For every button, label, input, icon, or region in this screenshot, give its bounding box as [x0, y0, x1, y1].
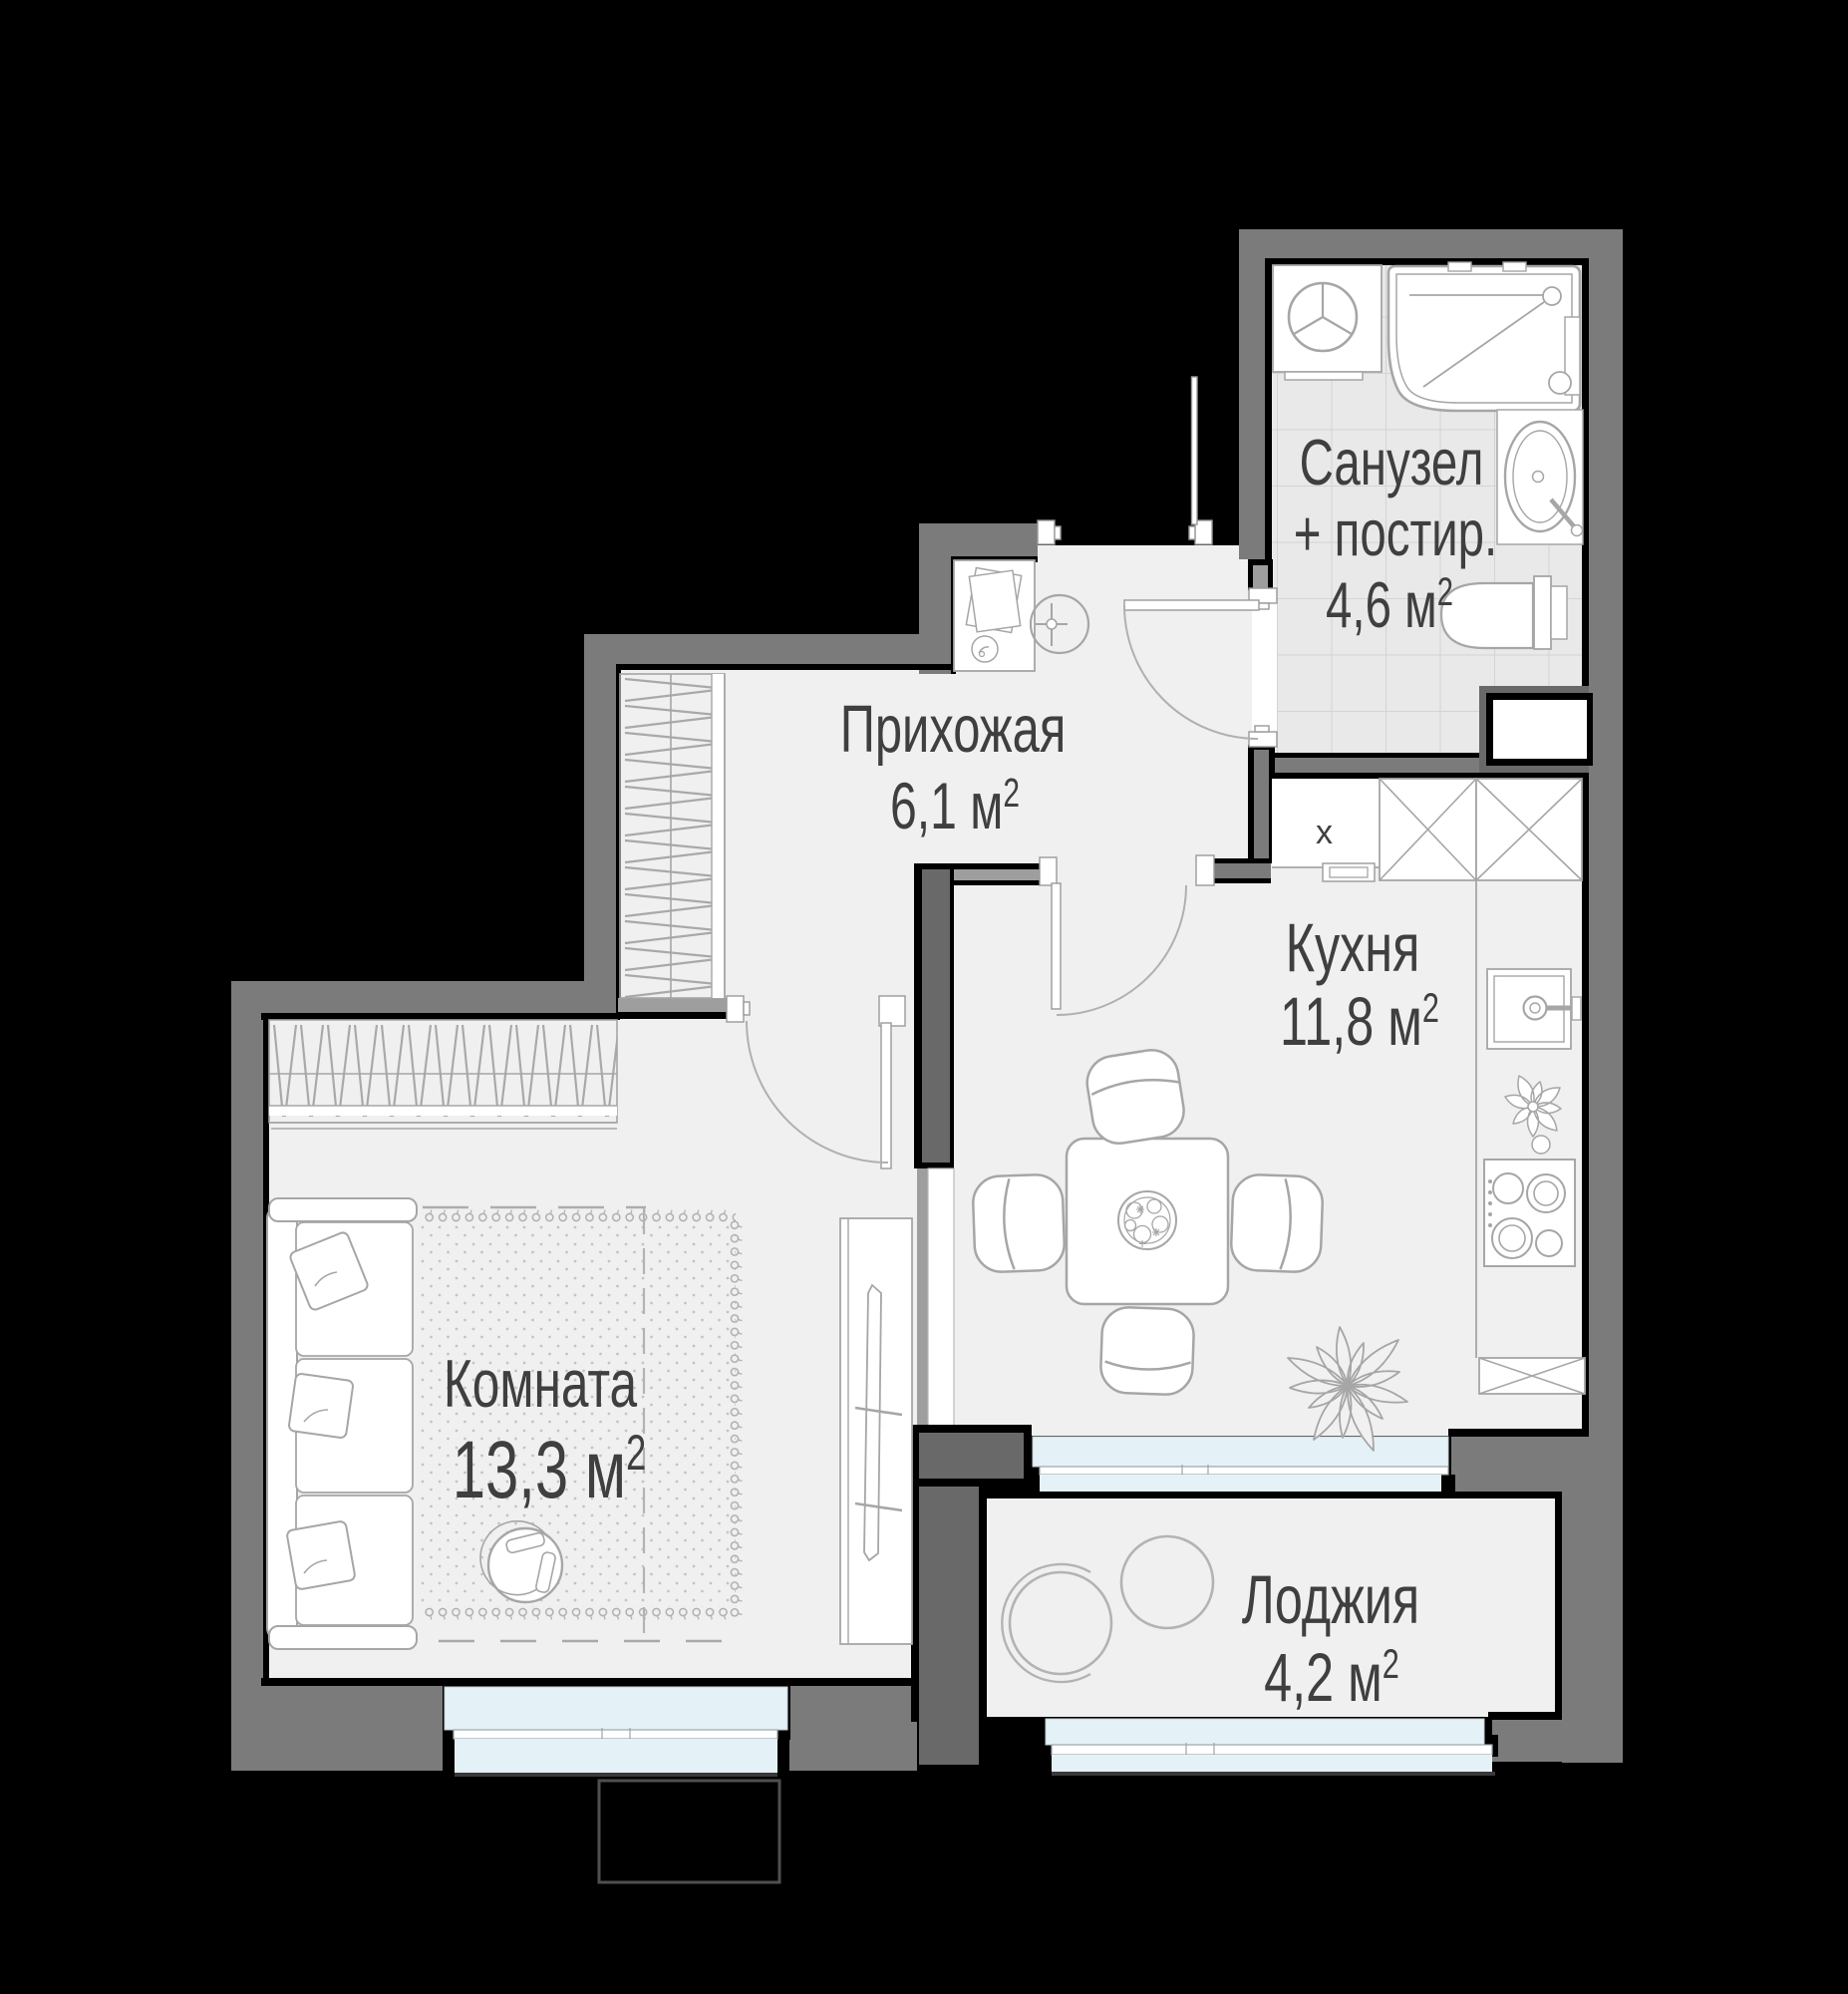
svg-text:Кухня: Кухня	[1286, 908, 1420, 986]
svg-text:x: x	[1316, 814, 1333, 851]
svg-text:11,8 м2: 11,8 м2	[1280, 982, 1439, 1060]
svg-text:Комната: Комната	[444, 1345, 638, 1422]
svg-text:Лоджия: Лоджия	[1242, 1560, 1419, 1638]
svg-text:Прихожая: Прихожая	[840, 693, 1067, 767]
svg-text:+ постир.: + постир.	[1294, 498, 1497, 570]
svg-text:13,3 м2: 13,3 м2	[453, 1425, 647, 1515]
svg-text:Санузел: Санузел	[1300, 427, 1484, 499]
svg-text:6,1 м2: 6,1 м2	[890, 770, 1020, 842]
svg-text:4,6 м2: 4,6 м2	[1326, 569, 1453, 642]
svg-text:4,2 м2: 4,2 м2	[1264, 1638, 1399, 1716]
